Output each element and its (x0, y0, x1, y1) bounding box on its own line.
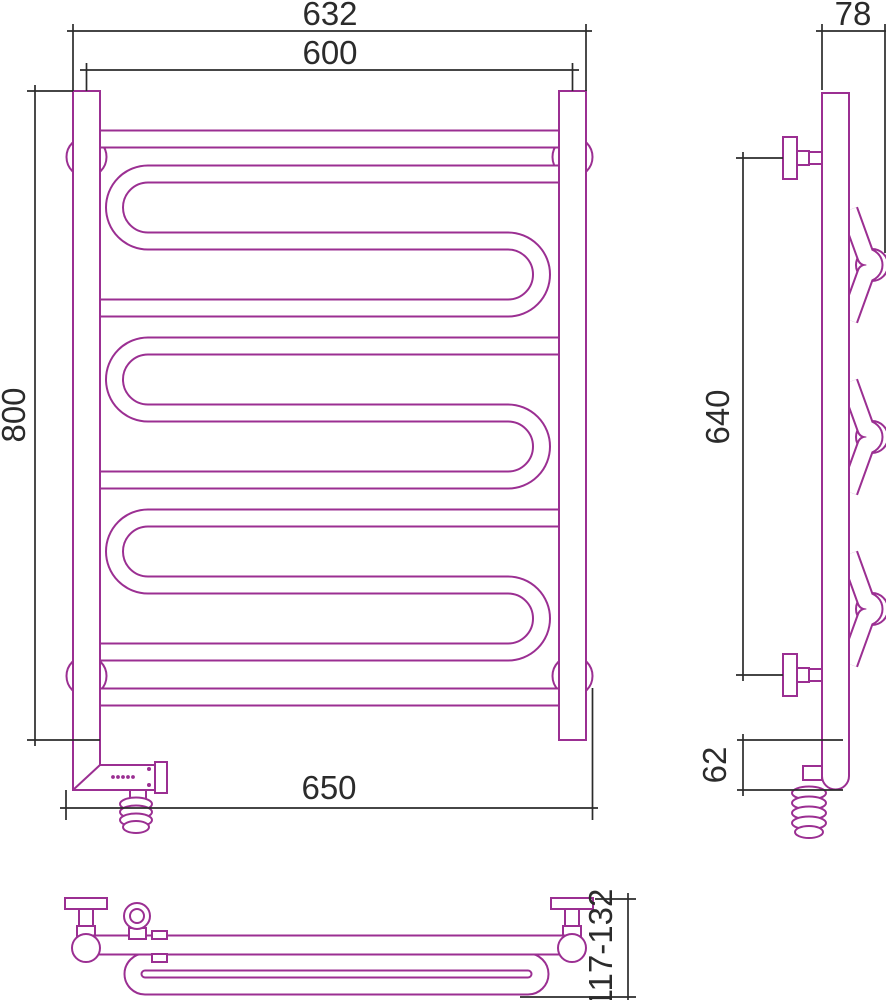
serpentine-coil-2 (100, 346, 559, 480)
post-sphere-left (72, 934, 100, 962)
bracket-collar (809, 152, 822, 164)
post-side-profile (822, 93, 849, 790)
bracket-arm (797, 668, 809, 682)
dim-label-640: 640 (699, 389, 736, 444)
front-view: 632 600 800 650 (0, 0, 598, 833)
side-view: 78 640 62 (696, 0, 886, 838)
coil-chevron-1 (849, 210, 874, 320)
serpentine-bow-plan (133, 962, 540, 986)
serpentine-coil-3 (100, 518, 559, 652)
dim-label-600: 600 (302, 34, 357, 71)
power-cord-coil-plan (124, 903, 150, 939)
heater-clamp-mark-1 (152, 931, 167, 939)
bracket-arm (565, 909, 579, 926)
bracket-arm (797, 151, 809, 165)
bracket-wall-plate (783, 137, 797, 179)
dim-label-78: 78 (835, 0, 872, 32)
right-post (559, 91, 586, 740)
bracket-arm (79, 909, 93, 926)
coil-chevron-2 (849, 382, 874, 492)
bottom-bracket-left (65, 898, 107, 937)
coil-chevron-3 (849, 554, 874, 664)
cord-elbow (803, 766, 822, 780)
power-cord-coil-front (120, 790, 152, 833)
power-cord-coil-side (792, 766, 826, 838)
dim-label-632: 632 (302, 0, 357, 32)
dim-label-62: 62 (696, 747, 733, 784)
technical-drawing-towel-rail: 632 600 800 650 (0, 0, 886, 1000)
heater-clamp-mark-2 (152, 954, 167, 962)
wall-bracket-top (783, 137, 822, 179)
bracket-collar (809, 669, 822, 681)
drawing-canvas: 632 600 800 650 (0, 0, 886, 1000)
serpentine-coil-1 (100, 174, 559, 308)
bracket-wall-plate (65, 898, 107, 909)
heater-end-cap (155, 762, 167, 793)
bracket-wall-plate (783, 654, 797, 696)
dim-label-117-132: 117-132 (582, 889, 619, 1000)
dim-label-650: 650 (301, 769, 356, 806)
wall-bracket-bottom (783, 654, 822, 696)
dim-label-800: 800 (0, 387, 32, 442)
bottom-view: 117-132 (65, 889, 636, 1000)
